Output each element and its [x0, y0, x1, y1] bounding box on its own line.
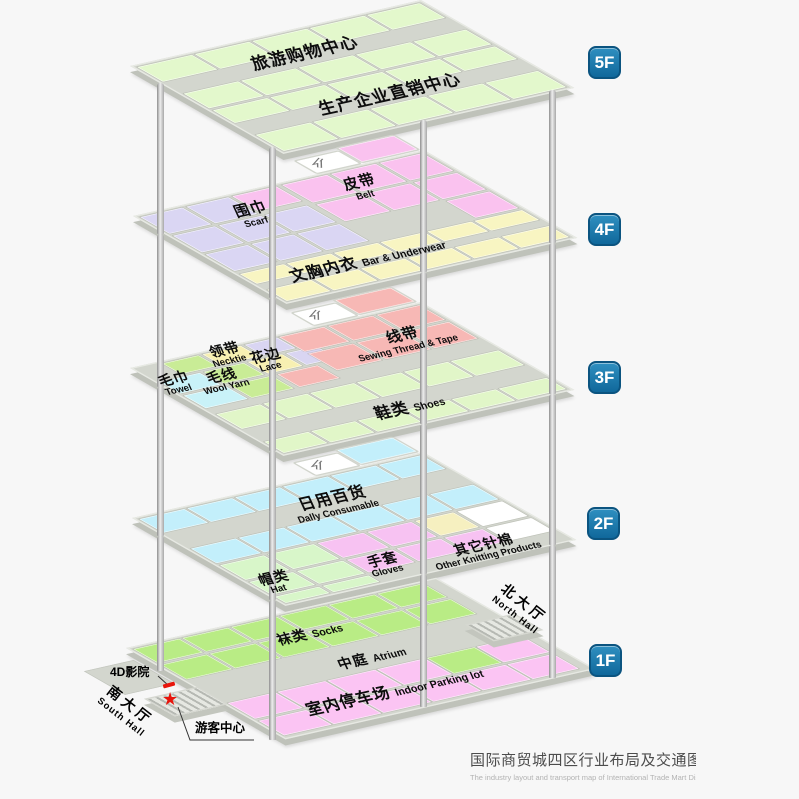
visitor-center-label: 游客中心 — [195, 717, 245, 736]
floor-badge-3f: 3F — [588, 361, 621, 394]
floor-map-diagram: 旅游购物中心生产企业直销中心皮带Belt围巾Scarf文胸内衣Bar & Und… — [0, 0, 799, 799]
floor-badge-1f: 1F — [589, 644, 622, 677]
floor-badge-4f: 4F — [588, 213, 621, 246]
map-title: 国际商贸城四区行业布局及交通图 — [470, 749, 696, 770]
map-title-block: 国际商贸城四区行业布局及交通图 The industry layout and … — [470, 749, 696, 782]
floor-badge-2f: 2F — [587, 507, 620, 540]
cinema-label: 4D影院 — [110, 663, 149, 680]
map-subtitle: The industry layout and transport map of… — [470, 773, 696, 782]
visitor-center-marker: ★ — [162, 691, 178, 709]
floor-badge-5f: 5F — [588, 46, 621, 79]
